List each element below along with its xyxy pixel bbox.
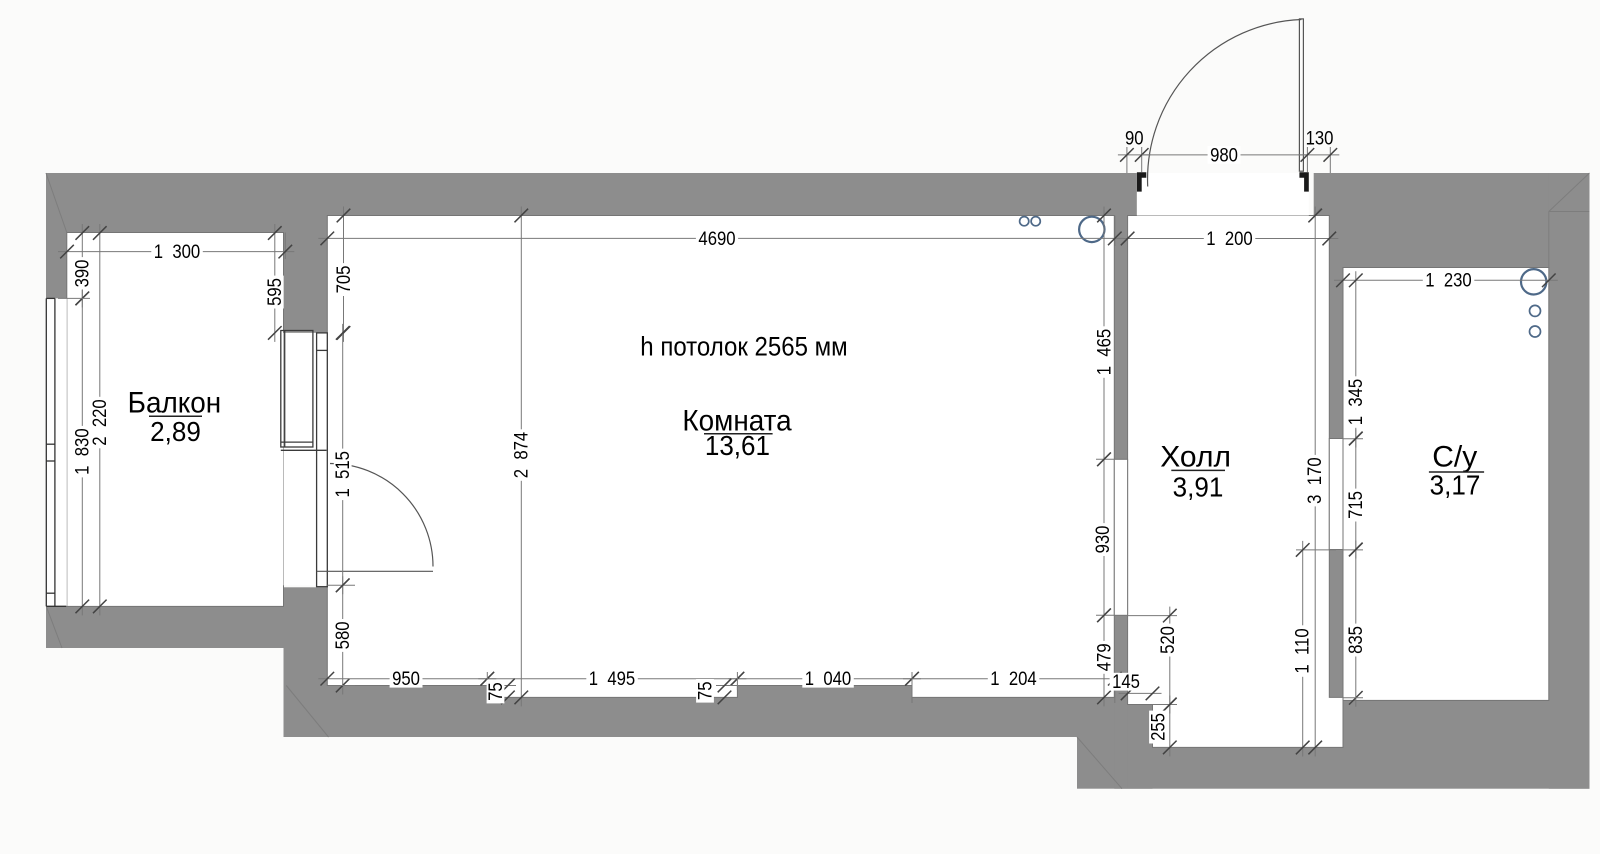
svg-text:1 204: 1 204 bbox=[990, 668, 1036, 689]
svg-text:2 220: 2 220 bbox=[89, 399, 110, 445]
svg-text:705: 705 bbox=[333, 266, 354, 294]
svg-text:1 495: 1 495 bbox=[589, 668, 635, 689]
svg-text:75: 75 bbox=[485, 682, 506, 701]
svg-text:3 170: 3 170 bbox=[1304, 457, 1325, 503]
svg-text:950: 950 bbox=[392, 668, 420, 689]
svg-text:580: 580 bbox=[332, 621, 353, 649]
svg-text:С/у: С/у bbox=[1432, 440, 1477, 473]
svg-text:1 345: 1 345 bbox=[1345, 379, 1366, 425]
svg-text:3,91: 3,91 bbox=[1173, 471, 1224, 502]
svg-text:595: 595 bbox=[264, 278, 285, 306]
svg-text:390: 390 bbox=[72, 260, 93, 288]
svg-text:2,89: 2,89 bbox=[150, 416, 201, 447]
svg-text:2 874: 2 874 bbox=[511, 432, 532, 478]
svg-text:255: 255 bbox=[1147, 713, 1168, 741]
svg-text:Холл: Холл bbox=[1160, 440, 1231, 473]
svg-text:1 200: 1 200 bbox=[1206, 228, 1252, 249]
svg-text:930: 930 bbox=[1092, 526, 1113, 554]
svg-text:h потолок 2565 мм: h потолок 2565 мм bbox=[640, 332, 847, 362]
svg-text:1 230: 1 230 bbox=[1425, 270, 1471, 291]
svg-text:835: 835 bbox=[1345, 626, 1366, 654]
svg-text:715: 715 bbox=[1345, 491, 1366, 519]
svg-text:145: 145 bbox=[1112, 671, 1140, 692]
svg-text:13,61: 13,61 bbox=[705, 430, 770, 461]
svg-text:75: 75 bbox=[694, 681, 715, 700]
svg-text:1 300: 1 300 bbox=[154, 241, 200, 262]
svg-text:1 110: 1 110 bbox=[1291, 628, 1312, 673]
svg-text:1 465: 1 465 bbox=[1093, 329, 1114, 375]
svg-text:130: 130 bbox=[1306, 127, 1334, 148]
svg-text:90: 90 bbox=[1125, 127, 1144, 148]
svg-text:1 515: 1 515 bbox=[332, 451, 353, 497]
svg-text:3,17: 3,17 bbox=[1430, 470, 1481, 501]
svg-text:4690: 4690 bbox=[698, 228, 735, 249]
svg-text:980: 980 bbox=[1210, 144, 1238, 165]
svg-text:479: 479 bbox=[1093, 643, 1114, 671]
svg-text:520: 520 bbox=[1157, 626, 1178, 654]
svg-text:1 040: 1 040 bbox=[805, 668, 851, 689]
